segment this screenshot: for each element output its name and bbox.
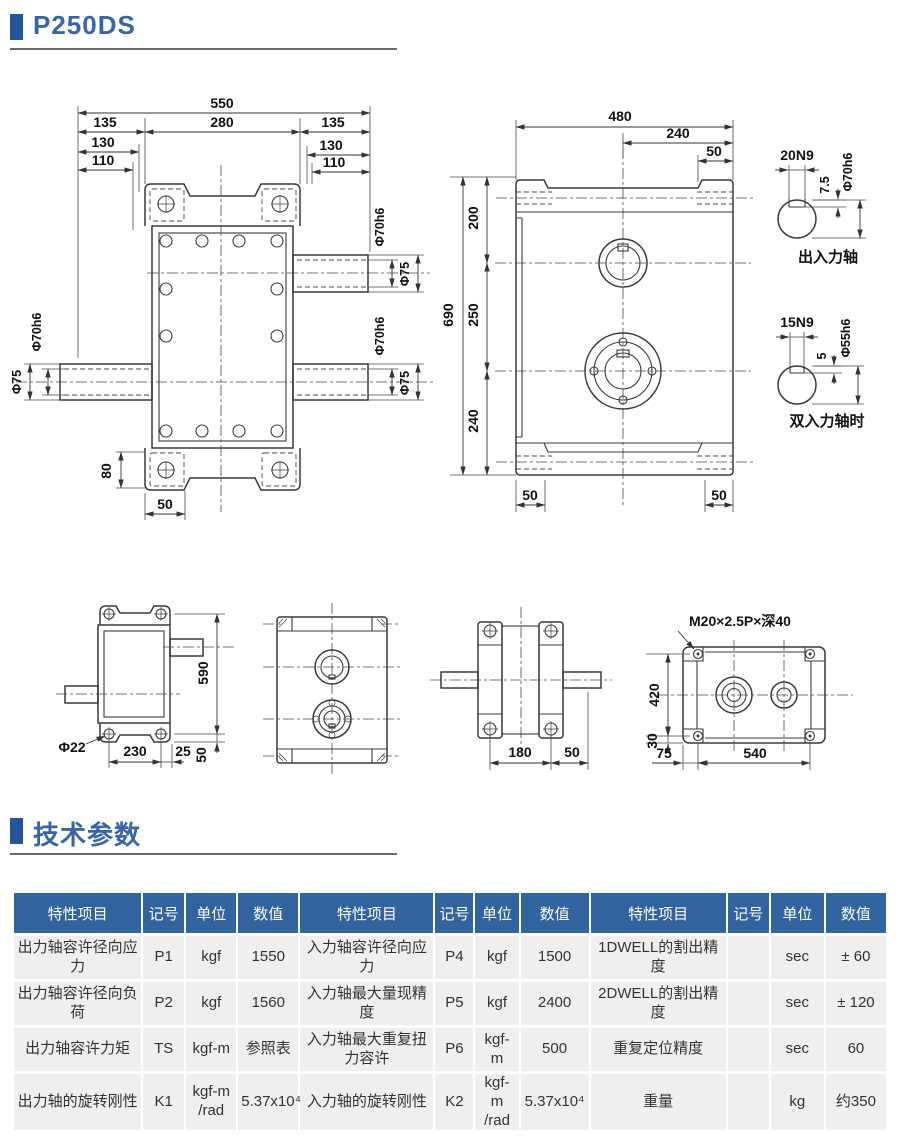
table-cell: 1500 <box>521 936 589 979</box>
table-cell: kgf-m <box>475 1028 518 1071</box>
dim-label: 15N9 <box>780 314 814 330</box>
table-cell: kg <box>771 1074 824 1130</box>
dim-label: 25 <box>175 743 191 759</box>
view-shaft-detail-1: 20N9 7.5 Φ70h6 出入力轴 <box>775 147 866 266</box>
table-cell <box>728 1074 769 1130</box>
table-cell: P5 <box>435 982 473 1025</box>
table-cell: 参照表 <box>238 1028 298 1071</box>
dim-label: Φ70h6 <box>373 317 387 356</box>
dim-label: 130 <box>319 137 343 153</box>
table-cell: sec <box>771 982 824 1025</box>
drawing-top-views: 550 135 280 135 130 110 130 110 <box>0 85 900 530</box>
table-cell: ± 60 <box>826 936 886 979</box>
table-cell: 500 <box>521 1028 589 1071</box>
page-title: P250DS <box>33 10 136 41</box>
dim-label: 240 <box>465 409 481 433</box>
table-cell: 约350 <box>826 1074 886 1130</box>
table-cell: kgf-m <box>186 1028 236 1071</box>
table-cell: P6 <box>435 1028 473 1071</box>
dim-label: Φ22 <box>58 739 85 755</box>
dim-label: 75 <box>656 745 672 761</box>
thread-label: M20×2.5P×深40 <box>689 613 791 629</box>
table-cell: kgf <box>475 936 518 979</box>
table-cell: 5.37x10⁴ <box>238 1074 298 1130</box>
table-header-cell: 单位 <box>771 893 824 933</box>
table-cell: ± 120 <box>826 982 886 1025</box>
dim-label: Φ70h6 <box>373 208 387 247</box>
section-title: 技术参数 <box>33 815 141 852</box>
table-cell: 2400 <box>521 982 589 1025</box>
table-cell: 出力轴的旋转刚性 <box>14 1074 141 1130</box>
view-end: 180 50 <box>430 607 612 770</box>
dim-label: 110 <box>323 154 346 170</box>
section-divider <box>10 853 397 855</box>
dim-label: 540 <box>743 745 767 761</box>
table-cell: 入力轴容许径向应力 <box>300 936 433 979</box>
dim-label: 50 <box>193 747 209 763</box>
table-cell: 5.37x10⁴ <box>521 1074 589 1130</box>
dim-label: 180 <box>508 744 532 760</box>
dim-label: 50 <box>522 487 538 503</box>
table-cell: 入力轴的旋转刚性 <box>300 1074 433 1130</box>
table-header-row: 特性项目记号单位数值特性项目记号单位数值特性项目记号单位数值 <box>14 893 886 933</box>
dim-label: 135 <box>93 114 117 130</box>
dim-label: 50 <box>706 143 722 159</box>
table-cell: K1 <box>143 1074 184 1130</box>
table-header-cell: 单位 <box>186 893 236 933</box>
table-row: 出力轴容许径向应力P1kgf1550入力轴容许径向应力P4kgf15001DWE… <box>14 936 886 979</box>
drawing-bottom-views: 590 50 Φ22 230 25 <box>0 575 900 810</box>
table-header-cell: 单位 <box>475 893 518 933</box>
view-rear <box>263 603 401 777</box>
table-cell: kgf-m /rad <box>186 1074 236 1130</box>
dim-label: 110 <box>92 152 115 168</box>
dim-label: 590 <box>195 661 211 685</box>
table-cell: 出力轴容许径向负荷 <box>14 982 141 1025</box>
view-shaft-detail-2: 15N9 5 Φ55h6 双入力轴时 <box>776 314 865 430</box>
table-header-cell: 记号 <box>435 893 473 933</box>
dim-label: Φ55h6 <box>839 319 853 358</box>
dim-label: 240 <box>666 125 690 141</box>
dim-label: 20N9 <box>780 147 814 163</box>
table-cell: P4 <box>435 936 473 979</box>
spec-table-body: 出力轴容许径向应力P1kgf1550入力轴容许径向应力P4kgf15001DWE… <box>14 936 886 1130</box>
table-row: 出力轴容许力矩TSkgf-m参照表入力轴最大重复扭力容许P6kgf-m500重复… <box>14 1028 886 1071</box>
dim-label: Φ75 <box>398 371 412 395</box>
table-cell: sec <box>771 936 824 979</box>
table-cell: sec <box>771 1028 824 1071</box>
table-cell: 60 <box>826 1028 886 1071</box>
table-cell: 1DWELL的割出精度 <box>591 936 726 979</box>
accent-bar <box>10 14 23 40</box>
dim-label: 50 <box>564 744 580 760</box>
table-cell: 重量 <box>591 1074 726 1130</box>
table-cell: 出力轴容许径向应力 <box>14 936 141 979</box>
dim-label: 550 <box>210 95 234 111</box>
dim-label: 130 <box>91 134 115 150</box>
table-cell: kgf <box>186 936 236 979</box>
dim-label: 200 <box>465 206 481 230</box>
table-cell <box>728 982 769 1025</box>
table-cell <box>728 1028 769 1071</box>
spec-table: 特性项目记号单位数值特性项目记号单位数值特性项目记号单位数值 出力轴容许径向应力… <box>12 890 888 1133</box>
table-cell: 重复定位精度 <box>591 1028 726 1071</box>
dim-label: Φ75 <box>398 262 412 286</box>
table-cell: 入力轴最大量现精度 <box>300 982 433 1025</box>
table-header-cell: 记号 <box>143 893 184 933</box>
table-cell: 1560 <box>238 982 298 1025</box>
dim-label: 135 <box>321 114 345 130</box>
table-cell: kgf-m /rad <box>475 1074 518 1130</box>
spec-table-container: 特性项目记号单位数值特性项目记号单位数值特性项目记号单位数值 出力轴容许径向应力… <box>12 890 888 1133</box>
table-cell: kgf <box>186 982 236 1025</box>
dim-label: 420 <box>646 683 662 707</box>
dim-label: Φ70h6 <box>30 313 44 352</box>
dim-label: Φ75 <box>10 370 24 394</box>
table-header-cell: 数值 <box>826 893 886 933</box>
view-side: 590 50 Φ22 230 25 <box>56 606 237 768</box>
table-header-cell: 特性项目 <box>14 893 141 933</box>
table-cell: P2 <box>143 982 184 1025</box>
accent-bar <box>10 818 23 844</box>
dim-label: 50 <box>711 487 727 503</box>
shaft1-caption: 出入力轴 <box>798 248 858 266</box>
table-cell: kgf <box>475 982 518 1025</box>
table-cell: 出力轴容许力矩 <box>14 1028 141 1071</box>
table-cell: 2DWELL的割出精度 <box>591 982 726 1025</box>
dim-label: 7.5 <box>818 176 832 193</box>
table-header-cell: 特性项目 <box>300 893 433 933</box>
table-cell: K2 <box>435 1074 473 1130</box>
title-divider <box>10 48 397 50</box>
table-cell: P1 <box>143 936 184 979</box>
shaft2-caption: 双入力轴时 <box>789 412 864 430</box>
dim-label: 250 <box>465 303 481 327</box>
table-cell <box>728 936 769 979</box>
dim-label: 5 <box>815 352 829 359</box>
table-header-cell: 特性项目 <box>591 893 726 933</box>
view-top-plan: 550 135 280 135 130 110 130 110 <box>10 95 433 520</box>
dim-label: 480 <box>608 108 632 124</box>
table-header-cell: 数值 <box>238 893 298 933</box>
dim-label: 280 <box>210 114 234 130</box>
view-bottom: M20×2.5P×深40 420 30 7 <box>644 613 853 770</box>
table-row: 出力轴容许径向负荷P2kgf1560入力轴最大量现精度P5kgf24002DWE… <box>14 982 886 1025</box>
table-cell: 入力轴最大重复扭力容许 <box>300 1028 433 1071</box>
table-header-cell: 数值 <box>521 893 589 933</box>
dim-label: 690 <box>440 303 456 327</box>
dim-label: 50 <box>157 496 173 512</box>
dim-label: 80 <box>98 463 114 479</box>
view-front: 480 240 50 690 200 250 240 <box>440 108 753 512</box>
table-row: 出力轴的旋转刚性K1kgf-m /rad5.37x10⁴入力轴的旋转刚性K2kg… <box>14 1074 886 1130</box>
dim-label: 230 <box>123 743 147 759</box>
table-header-cell: 记号 <box>728 893 769 933</box>
table-cell: 1550 <box>238 936 298 979</box>
table-cell: TS <box>143 1028 184 1071</box>
dim-label: Φ70h6 <box>841 153 855 192</box>
datasheet-page: P250DS 550 135 280 135 130 110 <box>0 0 900 1141</box>
